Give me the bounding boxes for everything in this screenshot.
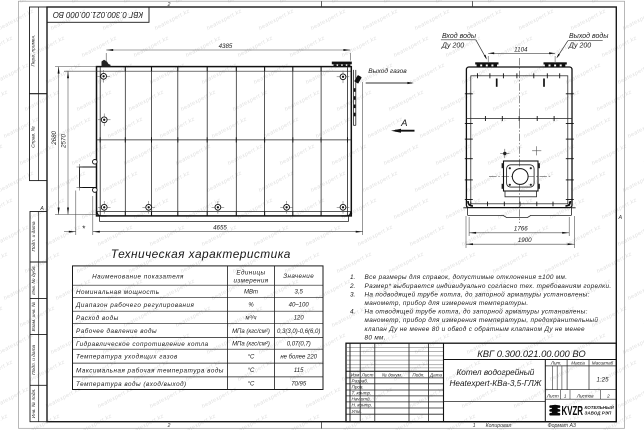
svg-text:Единицы: Единицы	[236, 268, 265, 276]
svg-text:МВт: МВт	[244, 290, 258, 296]
svg-text:клапан Ду не менее 80 и обвод: клапан Ду не менее 80 и обвод с обратным…	[365, 325, 586, 333]
svg-text:Подп. и дата: Подп. и дата	[31, 221, 37, 251]
svg-text:Котел водогрейный: Котел водогрейный	[456, 368, 534, 377]
svg-text:манометр, прибор для измерения: манометр, прибор для измерения температу…	[365, 299, 529, 307]
svg-text:Температура уходящих газов: Температура уходящих газов	[76, 353, 178, 361]
svg-text:Техническая характеристика: Техническая характеристика	[111, 247, 291, 261]
svg-text:%: %	[248, 303, 254, 309]
svg-text:измерения: измерения	[233, 278, 268, 285]
svg-text:Температура воды (вход/выход): Температура воды (вход/выход)	[76, 380, 187, 388]
svg-text:4.: 4.	[350, 309, 355, 316]
svg-text:Разраб.: Разраб.	[352, 379, 369, 384]
svg-text:2: 2	[167, 423, 171, 429]
svg-text:КВГ 0.300.021.00.000 ВО: КВГ 0.300.021.00.000 ВО	[477, 348, 586, 359]
svg-text:А: А	[400, 118, 407, 129]
svg-text:Ду 200: Ду 200	[568, 42, 591, 49]
svg-text:°С: °С	[248, 354, 255, 360]
svg-text:Максимальная рабочая температу: Максимальная рабочая температура воды	[76, 367, 224, 375]
svg-text:МПа (кгс/см²): МПа (кгс/см²)	[232, 342, 270, 348]
svg-text:КОТЕЛЬНЫЙ: КОТЕЛЬНЫЙ	[585, 403, 615, 410]
svg-text:Размер* выбирается индивидуаль: Размер* выбирается индивидуально согласн…	[365, 282, 612, 290]
svg-text:1: 1	[473, 423, 476, 429]
svg-text:Масса: Масса	[571, 361, 585, 366]
svg-text:Масштаб: Масштаб	[592, 361, 614, 366]
svg-text:Утв.: Утв.	[352, 409, 362, 414]
svg-text:Рабочее давление воды: Рабочее давление воды	[76, 327, 157, 335]
svg-text:МПа (кгс/см²): МПа (кгс/см²)	[232, 329, 270, 335]
svg-text:А: А	[617, 215, 622, 221]
svg-text:Выход газов: Выход газов	[368, 67, 407, 75]
svg-text:Лит.: Лит.	[550, 361, 562, 366]
svg-text:Перв. примен.: Перв. примен.	[31, 35, 37, 67]
svg-text:Взам. инв. №: Взам. инв. №	[31, 302, 37, 332]
svg-text:Наименование показателя: Наименование показателя	[92, 273, 184, 280]
svg-text:Формат А3: Формат А3	[548, 423, 576, 429]
svg-text:Инв. № дубл.: Инв. № дубл.	[31, 265, 37, 295]
svg-text:м³/ч: м³/ч	[246, 316, 257, 322]
svg-text:Подп. и дата: Подп. и дата	[31, 344, 37, 374]
svg-text:1: 1	[564, 393, 567, 398]
svg-text:Гидравлическое сопротивление к: Гидравлическое сопротивление котла	[76, 340, 209, 348]
svg-text:№ докум.: № докум.	[382, 373, 402, 378]
svg-text:2570: 2570	[60, 134, 67, 149]
svg-text:KVZR: KVZR	[562, 403, 584, 418]
svg-text:манометр, прибор для измерения: манометр, прибор для измерения температу…	[365, 316, 599, 324]
svg-text:Лист: Лист	[546, 393, 559, 398]
svg-text:Выход воды: Выход воды	[569, 32, 609, 40]
svg-text:2: 2	[606, 393, 610, 398]
svg-text:Лист: Лист	[361, 373, 374, 378]
svg-text:0,3(3,0)-0,6(6,0): 0,3(3,0)-0,6(6,0)	[277, 329, 320, 335]
svg-text:80 мм.: 80 мм.	[365, 334, 386, 341]
svg-text:1.: 1.	[350, 274, 355, 281]
svg-text:1104: 1104	[514, 46, 528, 53]
svg-text:40–100: 40–100	[289, 303, 310, 309]
svg-text:Дата: Дата	[429, 373, 443, 378]
svg-text:2: 2	[167, 2, 171, 8]
svg-text:Вход воды: Вход воды	[442, 32, 477, 40]
svg-text:°С: °С	[248, 381, 255, 387]
svg-text:Расход воды: Расход воды	[76, 314, 119, 322]
svg-text:3.: 3.	[350, 291, 355, 298]
svg-text:0,07(0,7): 0,07(0,7)	[287, 342, 311, 348]
svg-text:2680: 2680	[51, 130, 58, 145]
svg-text:°С: °С	[248, 368, 255, 374]
svg-text:Листов: Листов	[576, 393, 594, 398]
svg-text:Справ. №: Справ. №	[31, 126, 37, 148]
svg-text:Нач.отд.: Нач.отд.	[352, 397, 371, 402]
svg-text:70/95: 70/95	[291, 381, 307, 387]
svg-text:На отводящей трубе котла, до з: На отводящей трубе котла, до запорной ар…	[365, 308, 588, 316]
svg-text:1766: 1766	[514, 226, 528, 233]
svg-text:1:25: 1:25	[596, 377, 609, 384]
svg-text:Т. контр.: Т. контр.	[352, 391, 372, 396]
svg-text:115: 115	[294, 368, 304, 374]
svg-text:КВГ 0.300.021.00.000 ВО: КВГ 0.300.021.00.000 ВО	[53, 10, 143, 19]
svg-text:ЗАВОД РЭП: ЗАВОД РЭП	[585, 411, 612, 416]
svg-text:Копировал: Копировал	[486, 423, 512, 429]
svg-text:Все размеры для справок, допус: Все размеры для справок, допустимые откл…	[365, 273, 568, 281]
svg-text:Пров.: Пров.	[352, 385, 364, 390]
svg-text:не более 220: не более 220	[280, 354, 317, 360]
svg-text:3,5: 3,5	[295, 290, 304, 296]
svg-text:Н. контр.: Н. контр.	[352, 403, 373, 408]
svg-text:4385: 4385	[219, 43, 233, 50]
svg-text:Номинальная мощность: Номинальная мощность	[76, 289, 160, 296]
svg-text:Значение: Значение	[283, 273, 314, 280]
svg-text:Инв. № подл.: Инв. № подл.	[31, 388, 37, 418]
svg-text:Ду 200: Ду 200	[441, 42, 464, 49]
svg-text:120: 120	[294, 316, 305, 322]
svg-text:Heatexpert-КВа-3,5-ГЛЖ: Heatexpert-КВа-3,5-ГЛЖ	[450, 379, 542, 388]
svg-text:Подп.: Подп.	[412, 373, 424, 378]
svg-text:Изм: Изм	[351, 373, 360, 378]
svg-text:Диапазон рабочего регулировани: Диапазон рабочего регулирования	[75, 301, 194, 309]
svg-text:На подводящей трубе котла, до: На подводящей трубе котла, до запорной а…	[365, 290, 590, 298]
svg-text:4655: 4655	[213, 225, 227, 232]
svg-text:2.: 2.	[349, 283, 355, 290]
svg-text:1900: 1900	[518, 237, 532, 244]
